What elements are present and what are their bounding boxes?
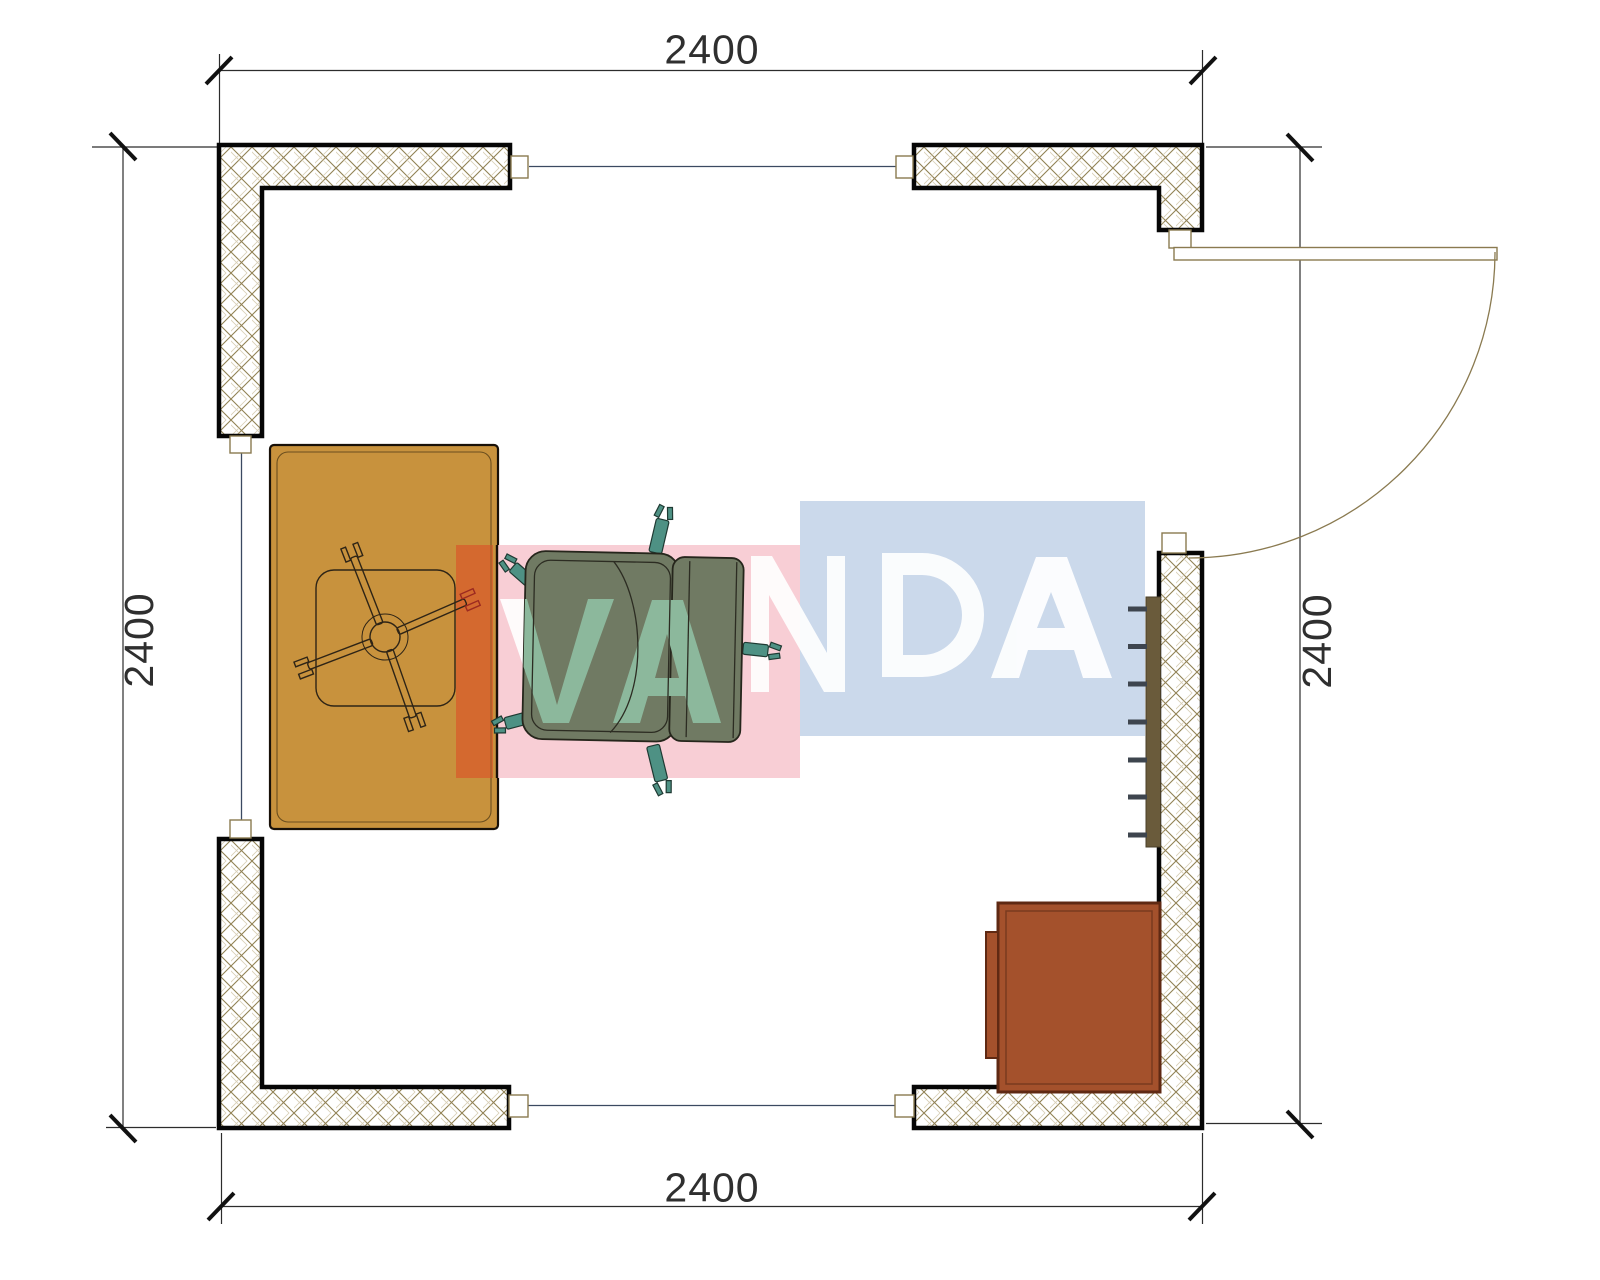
svg-text:2400: 2400 [664, 1165, 759, 1211]
svg-text:2400: 2400 [664, 27, 759, 73]
svg-text:2400: 2400 [116, 592, 162, 687]
svg-text:2400: 2400 [1294, 593, 1340, 688]
